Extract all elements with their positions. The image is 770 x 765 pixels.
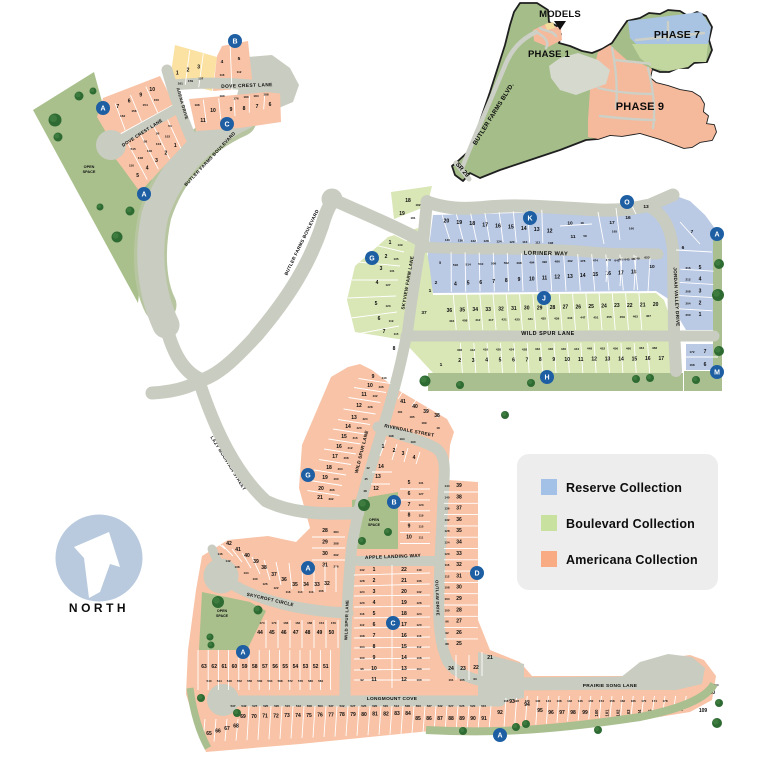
svg-text:54: 54 <box>293 664 299 670</box>
svg-text:127: 127 <box>385 283 390 287</box>
svg-text:146: 146 <box>217 552 222 556</box>
svg-text:502: 502 <box>504 261 509 265</box>
svg-text:27: 27 <box>563 305 569 311</box>
svg-text:7: 7 <box>116 104 119 110</box>
svg-text:98: 98 <box>570 710 576 716</box>
svg-text:514: 514 <box>466 262 471 266</box>
svg-text:176: 176 <box>233 96 238 100</box>
svg-text:188: 188 <box>263 93 268 97</box>
svg-text:185: 185 <box>409 415 414 419</box>
svg-text:55: 55 <box>282 664 288 670</box>
svg-text:87: 87 <box>437 716 443 722</box>
svg-text:38: 38 <box>261 565 267 571</box>
svg-text:166: 166 <box>283 621 288 625</box>
svg-text:PRAIRIE SONG LANE: PRAIRIE SONG LANE <box>583 683 638 689</box>
svg-text:478: 478 <box>580 259 585 263</box>
svg-text:15: 15 <box>341 434 347 440</box>
svg-text:13: 13 <box>643 204 649 210</box>
svg-text:36: 36 <box>281 577 287 583</box>
svg-text:424: 424 <box>509 347 514 351</box>
svg-text:455: 455 <box>607 315 612 319</box>
svg-text:104: 104 <box>156 142 161 146</box>
svg-text:18: 18 <box>326 465 332 471</box>
svg-text:97: 97 <box>559 710 565 716</box>
svg-text:527: 527 <box>448 704 453 708</box>
svg-text:128: 128 <box>484 239 489 243</box>
svg-text:112: 112 <box>535 241 540 245</box>
svg-text:515: 515 <box>481 704 486 708</box>
svg-text:23: 23 <box>460 666 466 672</box>
svg-text:111: 111 <box>419 536 424 540</box>
svg-text:5: 5 <box>373 611 376 617</box>
svg-text:166: 166 <box>631 699 636 703</box>
svg-text:58: 58 <box>144 139 148 143</box>
svg-text:525: 525 <box>361 704 366 708</box>
svg-text:184: 184 <box>253 94 258 98</box>
svg-text:16: 16 <box>336 444 342 450</box>
svg-text:506: 506 <box>491 262 496 266</box>
svg-text:9: 9 <box>139 93 142 99</box>
svg-text:170: 170 <box>271 621 276 625</box>
svg-text:58: 58 <box>583 234 587 238</box>
svg-text:584: 584 <box>318 679 323 683</box>
svg-text:9: 9 <box>552 357 555 363</box>
svg-text:17: 17 <box>609 220 615 226</box>
svg-text:A: A <box>100 106 105 113</box>
svg-text:2: 2 <box>165 150 168 156</box>
svg-text:38: 38 <box>434 413 440 419</box>
svg-text:158: 158 <box>307 621 312 625</box>
svg-text:435: 435 <box>541 317 546 321</box>
svg-text:432: 432 <box>372 394 377 398</box>
svg-text:B: B <box>232 39 237 46</box>
svg-text:448: 448 <box>587 347 592 351</box>
svg-text:146: 146 <box>578 699 583 703</box>
svg-text:7: 7 <box>704 349 707 355</box>
svg-text:8: 8 <box>373 644 376 650</box>
svg-text:54: 54 <box>168 124 172 128</box>
svg-text:15: 15 <box>401 644 407 650</box>
svg-text:PHASE 7: PHASE 7 <box>654 29 700 41</box>
svg-text:84: 84 <box>405 711 411 717</box>
svg-text:108: 108 <box>444 586 449 590</box>
svg-text:9: 9 <box>518 277 521 283</box>
svg-text:73: 73 <box>284 713 290 719</box>
svg-text:408: 408 <box>457 348 462 352</box>
svg-text:119: 119 <box>389 319 394 323</box>
svg-text:1: 1 <box>429 288 432 294</box>
svg-text:11: 11 <box>200 118 206 124</box>
svg-text:174: 174 <box>652 699 657 703</box>
svg-text:2: 2 <box>373 578 376 584</box>
svg-text:A: A <box>141 192 146 199</box>
svg-text:B: B <box>391 500 396 507</box>
svg-text:16: 16 <box>645 356 651 362</box>
svg-text:101: 101 <box>448 678 453 682</box>
svg-text:527: 527 <box>252 704 257 708</box>
svg-text:3: 3 <box>472 358 475 364</box>
svg-text:520: 520 <box>372 704 377 708</box>
svg-text:120: 120 <box>359 601 364 605</box>
svg-text:132: 132 <box>444 518 449 522</box>
svg-text:515: 515 <box>383 704 388 708</box>
svg-text:142: 142 <box>567 699 572 703</box>
svg-text:494: 494 <box>529 260 534 264</box>
svg-text:MODELS: MODELS <box>539 9 581 20</box>
svg-text:6: 6 <box>269 102 272 108</box>
svg-text:21: 21 <box>640 303 646 309</box>
svg-text:119: 119 <box>419 514 424 518</box>
svg-text:11: 11 <box>371 677 377 683</box>
svg-text:6: 6 <box>373 622 376 628</box>
svg-text:160: 160 <box>629 227 634 231</box>
svg-text:20: 20 <box>444 219 450 225</box>
svg-text:182: 182 <box>415 203 420 207</box>
svg-text:537: 537 <box>329 704 334 708</box>
svg-text:482: 482 <box>567 259 572 263</box>
svg-text:33: 33 <box>456 551 462 557</box>
svg-text:474: 474 <box>593 258 598 262</box>
svg-text:18: 18 <box>405 198 411 204</box>
svg-text:412: 412 <box>470 348 475 352</box>
svg-text:5: 5 <box>238 56 241 62</box>
svg-text:J: J <box>542 296 546 303</box>
svg-text:128: 128 <box>444 529 449 533</box>
svg-text:108: 108 <box>359 634 364 638</box>
svg-text:645: 645 <box>624 258 629 262</box>
svg-text:5: 5 <box>136 173 139 179</box>
svg-text:9: 9 <box>408 524 411 530</box>
svg-text:12: 12 <box>547 228 553 234</box>
svg-text:42: 42 <box>366 466 370 470</box>
svg-text:412: 412 <box>347 446 352 450</box>
svg-text:51: 51 <box>323 664 329 670</box>
svg-text:13: 13 <box>534 227 540 233</box>
svg-text:19: 19 <box>399 211 405 217</box>
svg-text:6: 6 <box>128 98 131 104</box>
svg-text:510: 510 <box>478 262 483 266</box>
svg-text:13: 13 <box>567 274 573 280</box>
svg-text:9: 9 <box>373 655 376 661</box>
svg-text:150: 150 <box>154 98 159 102</box>
svg-text:532: 532 <box>241 704 246 708</box>
svg-text:86: 86 <box>426 716 432 722</box>
svg-text:127: 127 <box>418 492 423 496</box>
svg-text:154: 154 <box>599 699 604 703</box>
svg-text:6: 6 <box>408 491 411 497</box>
svg-text:130: 130 <box>535 699 540 703</box>
svg-text:Reserve Collection: Reserve Collection <box>566 481 682 495</box>
svg-text:4: 4 <box>221 59 224 65</box>
svg-text:653: 653 <box>644 256 649 260</box>
svg-text:101: 101 <box>605 709 610 717</box>
svg-text:108: 108 <box>416 656 421 660</box>
svg-text:29: 29 <box>537 305 543 311</box>
svg-text:5: 5 <box>408 480 411 486</box>
svg-text:56: 56 <box>272 664 278 670</box>
svg-text:208: 208 <box>685 290 690 294</box>
svg-text:63: 63 <box>201 664 207 670</box>
svg-text:467: 467 <box>646 314 651 318</box>
svg-text:6: 6 <box>682 245 685 251</box>
svg-text:140: 140 <box>445 238 450 242</box>
svg-text:12: 12 <box>356 403 362 409</box>
svg-text:69: 69 <box>240 714 246 720</box>
svg-text:440: 440 <box>561 347 566 351</box>
svg-text:35: 35 <box>460 308 466 314</box>
svg-text:104: 104 <box>444 597 449 601</box>
svg-text:165: 165 <box>612 230 617 234</box>
svg-text:41: 41 <box>235 547 241 553</box>
svg-text:508: 508 <box>405 704 410 708</box>
svg-text:194: 194 <box>399 437 404 441</box>
svg-text:91: 91 <box>481 716 487 722</box>
svg-text:10: 10 <box>210 108 216 114</box>
svg-text:532: 532 <box>438 704 443 708</box>
svg-text:92: 92 <box>360 678 364 682</box>
svg-text:K: K <box>527 216 532 223</box>
svg-text:7: 7 <box>408 502 411 508</box>
svg-text:162: 162 <box>620 699 625 703</box>
svg-text:106: 106 <box>318 589 323 593</box>
svg-text:154: 154 <box>319 621 324 625</box>
svg-text:PHASE 1: PHASE 1 <box>528 49 571 60</box>
svg-text:459: 459 <box>620 315 625 319</box>
svg-text:8: 8 <box>408 513 411 519</box>
svg-text:78: 78 <box>339 712 345 718</box>
svg-text:14: 14 <box>618 356 624 362</box>
svg-text:23: 23 <box>614 303 620 309</box>
svg-text:C: C <box>390 621 395 628</box>
svg-text:14: 14 <box>580 273 586 279</box>
svg-text:LORINER WAY: LORINER WAY <box>524 251 569 258</box>
svg-text:SPACE: SPACE <box>216 614 229 618</box>
svg-text:513: 513 <box>394 704 399 708</box>
svg-text:18: 18 <box>401 611 407 617</box>
svg-text:428: 428 <box>367 405 372 409</box>
svg-text:140: 140 <box>444 495 449 499</box>
svg-text:A: A <box>240 650 245 657</box>
svg-text:1: 1 <box>176 71 179 77</box>
svg-text:19: 19 <box>401 600 407 606</box>
svg-text:440: 440 <box>381 376 386 380</box>
svg-text:82: 82 <box>383 711 389 717</box>
svg-text:31: 31 <box>511 306 517 312</box>
svg-text:34: 34 <box>472 307 478 313</box>
svg-text:56: 56 <box>156 132 160 136</box>
svg-text:436: 436 <box>548 347 553 351</box>
svg-text:H: H <box>544 375 549 382</box>
svg-text:8: 8 <box>539 357 542 363</box>
svg-text:128: 128 <box>416 601 421 605</box>
svg-text:100: 100 <box>594 709 599 717</box>
svg-text:SPACE: SPACE <box>83 170 96 174</box>
svg-text:136: 136 <box>458 239 463 243</box>
svg-text:112: 112 <box>417 645 422 649</box>
svg-text:556: 556 <box>247 679 252 683</box>
svg-text:29: 29 <box>322 540 328 546</box>
svg-text:1: 1 <box>440 362 443 368</box>
svg-text:162: 162 <box>120 114 125 118</box>
svg-text:11: 11 <box>361 392 367 398</box>
svg-text:59: 59 <box>242 664 248 670</box>
svg-text:138: 138 <box>556 699 561 703</box>
svg-text:408: 408 <box>343 456 348 460</box>
svg-text:O: O <box>624 200 630 207</box>
svg-text:503: 503 <box>416 704 421 708</box>
svg-text:292: 292 <box>333 553 338 557</box>
svg-text:126: 126 <box>262 582 267 586</box>
svg-text:115: 115 <box>419 525 424 529</box>
svg-text:498: 498 <box>516 261 521 265</box>
svg-text:68: 68 <box>233 724 239 730</box>
svg-text:10: 10 <box>367 383 373 389</box>
svg-text:515: 515 <box>131 147 136 151</box>
svg-text:503: 503 <box>318 704 323 708</box>
svg-text:16: 16 <box>401 633 407 639</box>
svg-text:131: 131 <box>418 481 423 485</box>
svg-text:3: 3 <box>155 158 158 164</box>
svg-text:20: 20 <box>318 486 324 492</box>
svg-text:580: 580 <box>308 679 313 683</box>
svg-text:548: 548 <box>227 679 232 683</box>
svg-text:4: 4 <box>485 358 488 364</box>
svg-text:18: 18 <box>631 269 637 275</box>
svg-text:3: 3 <box>380 266 383 272</box>
svg-text:525: 525 <box>263 704 268 708</box>
svg-text:486: 486 <box>555 260 560 264</box>
svg-text:88: 88 <box>445 642 449 646</box>
svg-text:39: 39 <box>423 409 429 415</box>
svg-text:76: 76 <box>317 713 323 719</box>
svg-text:421: 421 <box>502 318 507 322</box>
svg-text:174: 174 <box>259 621 264 625</box>
svg-text:72: 72 <box>273 713 279 719</box>
svg-text:144: 144 <box>444 484 449 488</box>
svg-text:90: 90 <box>470 716 476 722</box>
svg-text:134: 134 <box>546 699 551 703</box>
svg-text:34: 34 <box>303 582 309 588</box>
svg-text:443: 443 <box>567 316 572 320</box>
svg-text:490: 490 <box>542 260 547 264</box>
svg-text:45: 45 <box>364 477 368 481</box>
svg-text:136: 136 <box>444 507 449 511</box>
svg-text:420: 420 <box>496 348 501 352</box>
svg-text:3: 3 <box>373 589 376 595</box>
svg-text:428: 428 <box>522 347 527 351</box>
svg-text:30: 30 <box>524 306 530 312</box>
svg-text:49: 49 <box>317 630 323 636</box>
svg-text:15: 15 <box>593 272 599 278</box>
svg-text:11: 11 <box>570 234 575 240</box>
svg-text:1: 1 <box>699 312 702 318</box>
svg-text:170: 170 <box>641 699 646 703</box>
svg-text:5: 5 <box>699 265 702 271</box>
svg-text:17: 17 <box>482 222 488 228</box>
svg-text:392: 392 <box>328 497 333 501</box>
svg-text:7: 7 <box>383 329 386 335</box>
svg-text:4: 4 <box>413 455 416 461</box>
svg-text:162: 162 <box>295 621 300 625</box>
svg-text:A: A <box>497 733 502 740</box>
svg-text:67: 67 <box>224 726 230 732</box>
svg-text:17: 17 <box>659 356 665 362</box>
svg-text:432: 432 <box>535 347 540 351</box>
svg-text:572: 572 <box>288 679 293 683</box>
svg-text:9: 9 <box>230 107 233 113</box>
svg-text:OPEN: OPEN <box>217 609 228 613</box>
svg-text:132: 132 <box>416 590 421 594</box>
svg-text:104: 104 <box>359 645 364 649</box>
svg-text:15: 15 <box>632 356 638 362</box>
svg-text:9: 9 <box>372 374 375 380</box>
svg-text:161: 161 <box>178 82 183 86</box>
svg-text:81: 81 <box>372 712 378 718</box>
svg-text:G: G <box>305 473 311 480</box>
svg-text:18: 18 <box>580 221 584 225</box>
svg-text:10: 10 <box>149 87 155 93</box>
svg-text:17: 17 <box>401 622 407 628</box>
svg-text:576: 576 <box>298 679 303 683</box>
svg-text:126: 126 <box>525 699 530 703</box>
svg-text:112: 112 <box>360 623 365 627</box>
svg-text:115: 115 <box>394 332 399 336</box>
svg-text:7: 7 <box>526 357 529 363</box>
svg-text:8: 8 <box>243 106 246 112</box>
svg-text:G: G <box>369 256 375 263</box>
svg-text:OPEN: OPEN <box>369 518 380 522</box>
svg-text:11: 11 <box>578 357 584 363</box>
svg-text:158: 158 <box>131 109 136 113</box>
svg-text:28: 28 <box>456 607 462 613</box>
svg-text:190: 190 <box>410 440 415 444</box>
svg-text:13: 13 <box>351 415 357 421</box>
svg-text:35: 35 <box>456 528 462 534</box>
svg-text:138: 138 <box>234 565 239 569</box>
svg-text:116: 116 <box>417 634 422 638</box>
svg-text:560: 560 <box>257 679 262 683</box>
svg-text:464: 464 <box>639 346 644 350</box>
svg-text:4: 4 <box>373 600 376 606</box>
svg-text:128: 128 <box>359 579 364 583</box>
svg-text:28: 28 <box>550 305 556 311</box>
svg-text:100: 100 <box>359 656 364 660</box>
svg-text:124: 124 <box>359 590 364 594</box>
svg-text:122: 122 <box>273 586 278 590</box>
svg-text:568: 568 <box>278 679 283 683</box>
svg-text:178: 178 <box>662 699 667 703</box>
svg-text:7: 7 <box>492 279 495 285</box>
svg-text:30: 30 <box>322 551 328 557</box>
svg-text:14: 14 <box>378 464 384 470</box>
svg-text:70: 70 <box>251 714 257 720</box>
svg-text:212: 212 <box>685 278 690 282</box>
svg-text:404: 404 <box>337 467 342 471</box>
svg-text:159: 159 <box>188 79 193 83</box>
svg-text:447: 447 <box>580 316 585 320</box>
svg-text:LONGMOUNT COVE: LONGMOUNT COVE <box>367 696 418 702</box>
svg-text:10: 10 <box>529 276 535 282</box>
svg-text:28: 28 <box>322 528 328 534</box>
svg-text:32: 32 <box>498 306 504 312</box>
svg-text:8: 8 <box>505 278 508 284</box>
svg-text:M: M <box>714 370 720 377</box>
svg-text:1: 1 <box>373 567 376 573</box>
svg-text:24: 24 <box>601 304 607 310</box>
svg-text:74: 74 <box>295 713 301 719</box>
svg-text:396: 396 <box>329 488 334 492</box>
svg-text:26: 26 <box>456 630 462 636</box>
